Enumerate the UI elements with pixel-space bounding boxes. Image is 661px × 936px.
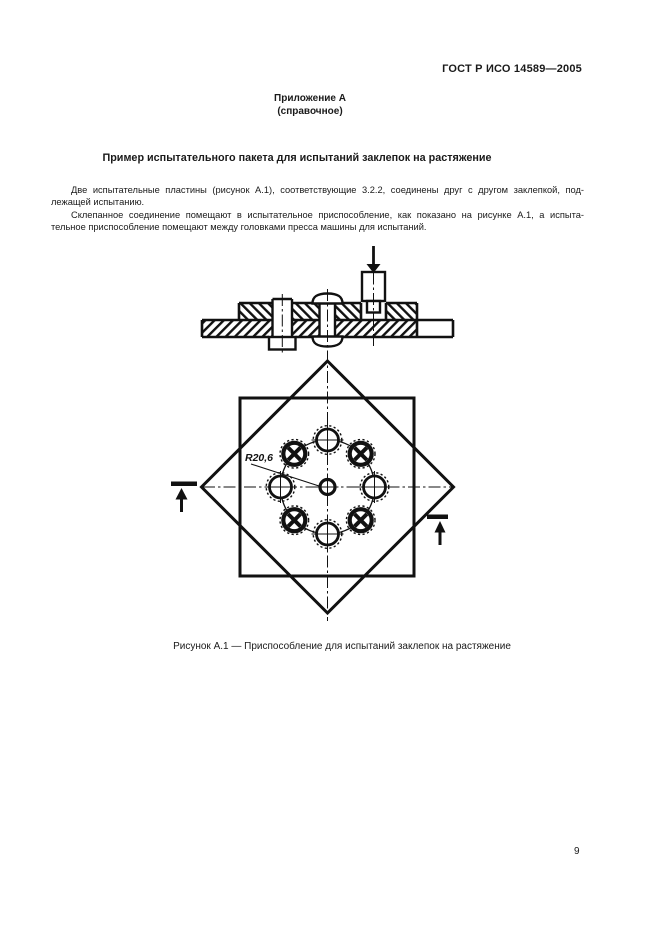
page-number: 9 — [574, 846, 580, 857]
rivet-circle-nw — [280, 440, 309, 469]
figure-a1-drawing: R20,6 — [0, 0, 661, 936]
rivet-circle-sw — [280, 506, 309, 535]
document-page: ГОСТ Р ИСО 14589—2005 Приложение А (спра… — [0, 0, 661, 936]
clamp-symbol-left — [171, 482, 197, 513]
lower-plate-plain-end — [417, 320, 453, 337]
lower-plate-hatch — [202, 320, 417, 337]
rivet-circle-ne — [346, 440, 375, 469]
clamp-symbol-right — [427, 515, 448, 546]
figure-caption: Рисунок А.1 — Приспособление для испытан… — [32, 641, 652, 652]
rivet-circle-se — [346, 506, 375, 535]
radius-label: R20,6 — [245, 452, 273, 464]
